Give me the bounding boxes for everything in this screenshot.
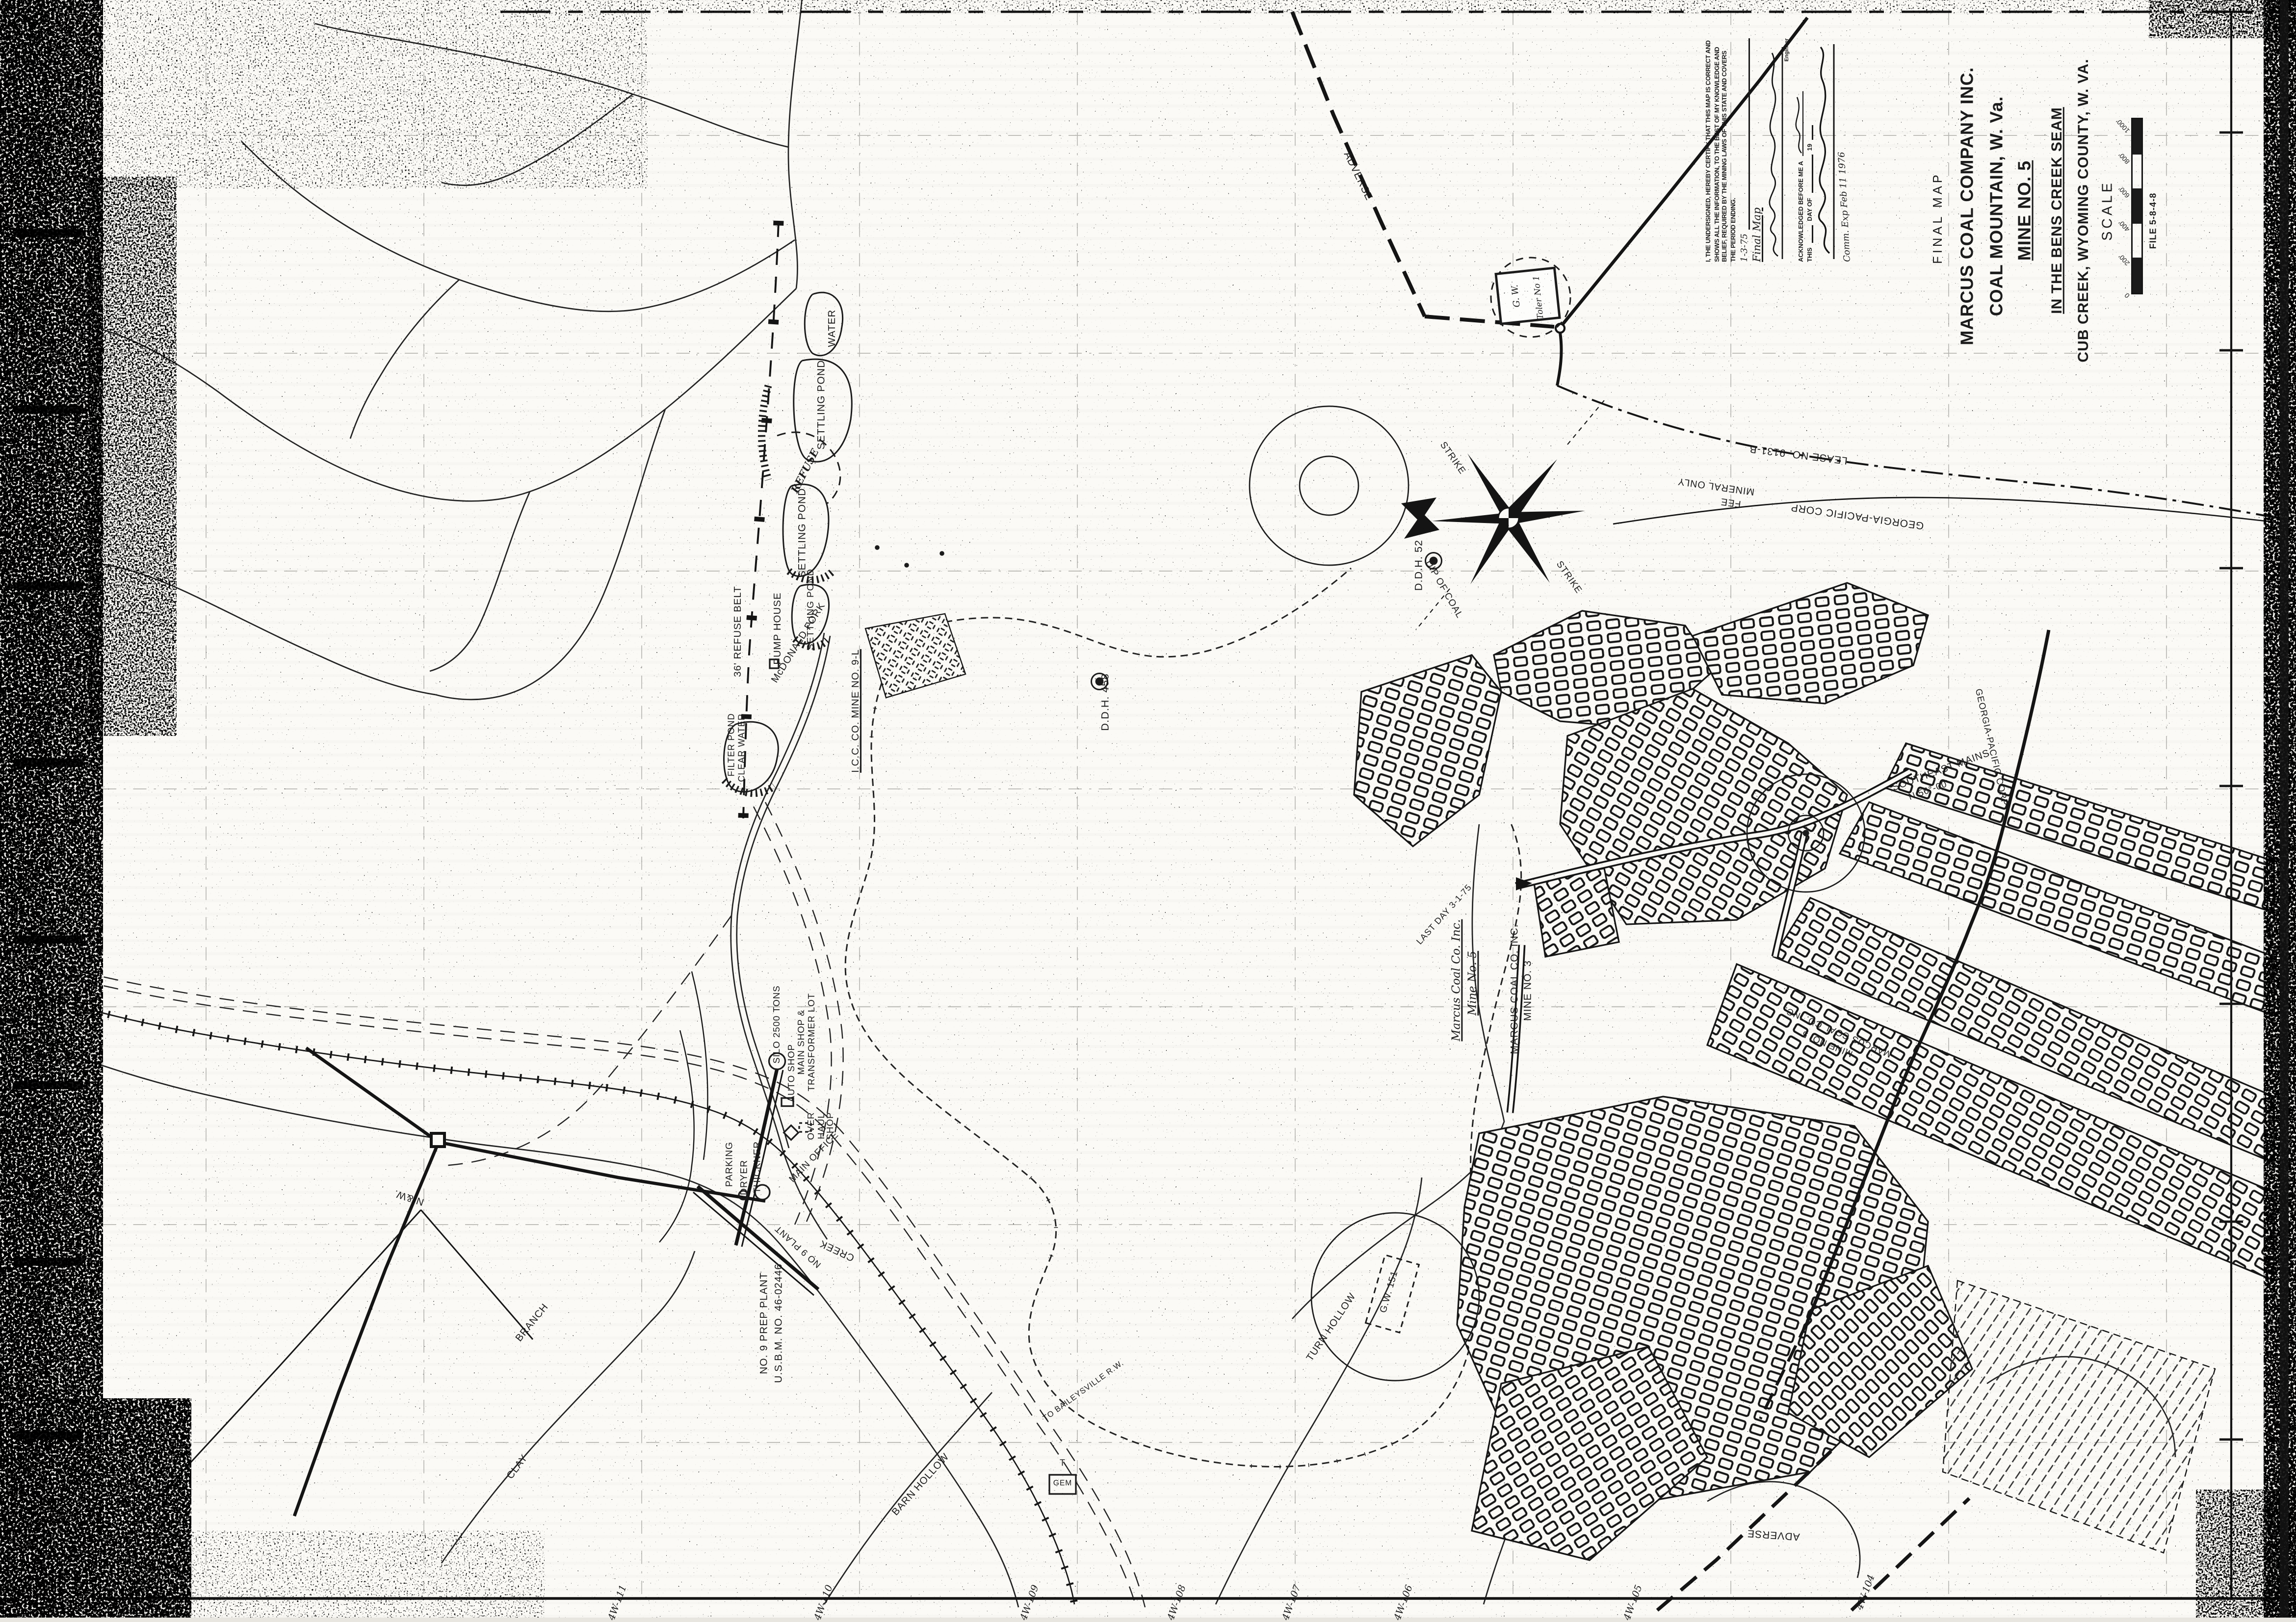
label-silo: SILO 2500 TONS (774, 985, 783, 1064)
engineer-label: Engineer (1783, 38, 1789, 262)
scan-noise (0, 0, 2296, 1618)
scale-tick: 400' (2117, 219, 2131, 233)
label-parking: PARKING (727, 1142, 737, 1187)
label-marcus5-script-2: Mine No. 5 (1467, 951, 1479, 1016)
period-ending-value: 1-3-75 (1739, 234, 1749, 262)
label-gem-t: T (1060, 1460, 1066, 1469)
label-filter-pond: FILTER POND (728, 713, 737, 776)
scale-tick: 600' (2117, 185, 2131, 199)
certification-block: I, THE UNDERSIGNED, HEREBY CERTIFY THAT … (1704, 38, 1875, 262)
final-map-note: Final Map (1749, 38, 1763, 262)
map-type-title: FINAL MAP (1931, 172, 1945, 264)
scale-label: SCALE (2102, 180, 2117, 240)
label-clear-water: CLEAR WATER (738, 713, 748, 782)
label-ddh-458: D.D.H. 458 (1099, 673, 1111, 731)
label-marcus3-2: MINE NO. 3 (1524, 960, 1535, 1021)
mine-no-title: MINE NO. 5 (2016, 160, 2035, 261)
label-pump-house: PUMP HOUSE (773, 592, 784, 664)
label-settling-pond-upper: SETTLING POND (817, 360, 829, 450)
label-gem: GEM (1053, 1481, 1072, 1490)
day-of-label: DAY OF (1805, 198, 1813, 221)
company-title: MARCUS COAL COMPANY INC. (1958, 67, 1978, 345)
label-usbm: U.S.B.M. NO. 46-02446 (775, 1263, 786, 1383)
certification-text: I, THE UNDERSIGNED, HEREBY CERTIFY THAT … (1704, 38, 1738, 262)
scale-bar: 0 200' 400' 600' 800' 1000' (2116, 118, 2149, 294)
file-label: FILE 5-8-4-8 (2150, 193, 2159, 249)
map-linework-svg (0, 0, 2296, 1618)
scale-bar-segments (2131, 118, 2143, 294)
year-prefix: 19 (1805, 144, 1813, 151)
acknowledged-label: ACKNOWLEDGED BEFORE ME A (1797, 161, 1804, 262)
scale-tick: 800' (2117, 151, 2131, 165)
label-marcus5-script-1: Marcus Coal Co. Inc. (1451, 919, 1463, 1042)
notary-scribble (1792, 92, 1804, 157)
label-settling-pond-middle: SETTLING POND (798, 488, 809, 578)
scale-tick: 1000' (2115, 117, 2131, 134)
label-refuse-belt: 36' REFUSE BELT (733, 586, 744, 677)
label-marcus3-1: MARCUS COAL CO. INC. (1511, 924, 1522, 1054)
scale-tick: 200' (2117, 253, 2131, 267)
label-prep-plant: NO. 9 PREP PLANT (760, 1272, 771, 1374)
label-main-shop: MAIN SHOP & TRANSFORMER LOT (798, 980, 818, 1104)
this-label: THIS (1805, 248, 1813, 262)
label-water: WATER (828, 310, 838, 347)
county-title: CUB CREEK, WYOMING COUNTY, W. VA. (2078, 58, 2093, 362)
label-dryer: DRYER (741, 1160, 752, 1195)
engineer-signature (1763, 41, 1785, 262)
label-thickner: THICKNER (755, 1141, 765, 1193)
coal-mountain-title: COAL MOUNTAIN, W. Va. (1988, 96, 2007, 316)
seam-title: IN THE BENS CREEK SEAM (2051, 107, 2067, 314)
scanned-mine-map: FINAL MAP MARCUS COAL COMPANY INC. COAL … (0, 0, 2296, 1618)
label-mine-9l: I.C.C. CO. MINE NO. 9-L (851, 649, 862, 773)
scale-bar-ticks: 0 200' 400' 600' 800' 1000' (2116, 118, 2131, 294)
